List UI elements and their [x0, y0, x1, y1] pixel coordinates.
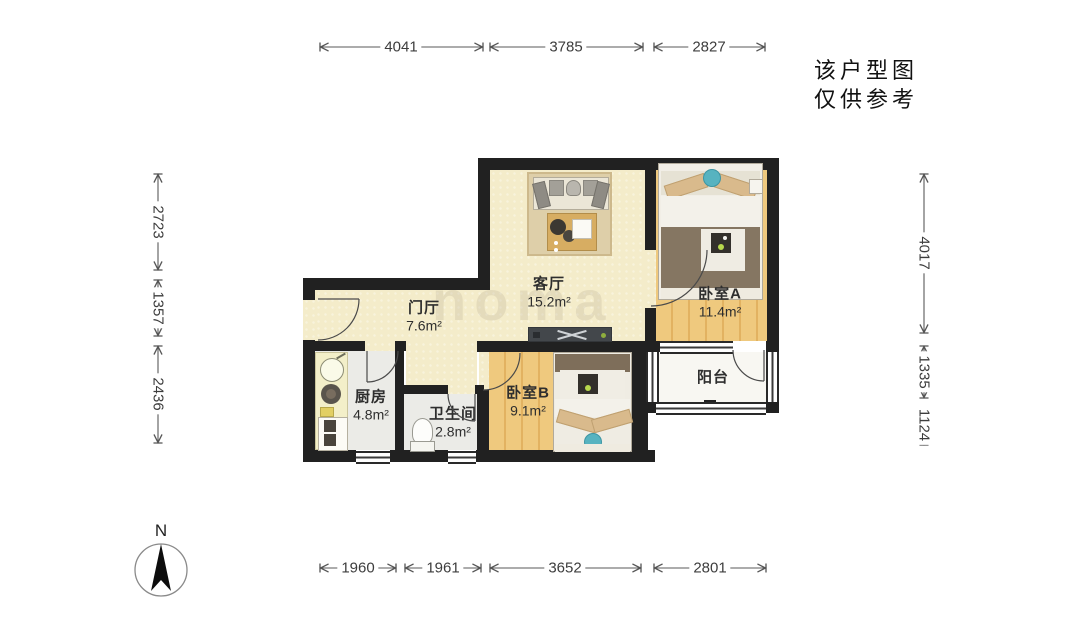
wall-bedrooma-divider-upper — [645, 158, 656, 250]
bedroom-a-bed — [658, 163, 763, 300]
balcony-post-br — [766, 401, 779, 413]
kitchen-cabinet-door — [324, 434, 336, 446]
kitchen-counter — [315, 352, 348, 450]
dim-left-2: 1357 — [150, 287, 167, 328]
dim-top-1: 4041 — [380, 39, 421, 56]
dim-bottom-4: 2801 — [689, 560, 730, 577]
sofa-cushion — [566, 180, 581, 196]
dim-bottom-3: 3652 — [544, 560, 585, 577]
north-compass-icon — [135, 544, 187, 596]
room-name: 阳台 — [697, 369, 729, 387]
kitchen-item-yellow — [320, 407, 334, 417]
room-area: 2.8m² — [429, 424, 477, 441]
wall-bottom-1 — [303, 450, 356, 462]
bedroom-b-bed — [553, 352, 632, 452]
dim-right-3: 1124 — [916, 405, 933, 445]
wall-left-upper — [303, 278, 315, 300]
window-balcony-left — [646, 352, 659, 402]
room-area: 7.6m² — [406, 318, 442, 335]
room-label-bedroom-b: 卧室B 9.1m² — [506, 385, 550, 420]
room-area: 15.2m² — [527, 294, 571, 311]
bed-foot-strip — [555, 444, 630, 452]
room-label-bathroom: 卫生间 2.8m² — [429, 406, 477, 441]
wall-bedrooma-bottom-corner-right — [766, 341, 779, 352]
sofa-cushion — [549, 180, 564, 196]
window-balcony-right — [766, 352, 779, 402]
wall-bath-top-1 — [404, 385, 448, 394]
dim-right-1: 4017 — [916, 232, 933, 273]
table-decor-card — [572, 219, 592, 239]
toilet-tank — [410, 441, 435, 452]
room-name: 卫生间 — [429, 406, 477, 424]
entrance-threshold — [303, 298, 315, 340]
kitchen-sink — [320, 358, 344, 382]
dim-right-2: 1335 — [916, 351, 933, 392]
dim-bottom-1: 1960 — [337, 560, 378, 577]
window-balcony-south — [656, 402, 766, 415]
window-bathroom-south — [448, 451, 476, 464]
room-label-balcony: 阳台 — [697, 369, 729, 387]
wall-kitchen-top-1 — [303, 341, 365, 351]
room-name: 卧室A — [698, 286, 742, 304]
kitchen-door-threshold — [365, 341, 398, 351]
table-decor-dot — [554, 241, 558, 245]
bed-tray-dot-green — [718, 244, 724, 250]
dim-left-1: 2723 — [150, 201, 167, 242]
dim-top-2: 3785 — [545, 39, 586, 56]
room-label-entry-hall: 门厅 7.6m² — [406, 300, 442, 335]
window-bedrooma-balcony — [660, 341, 733, 354]
room-area: 4.8m² — [353, 407, 389, 424]
balcony-post-bl — [642, 401, 656, 413]
compass-north-label: N — [155, 521, 167, 541]
bedroom-a-nightstand — [749, 179, 763, 194]
room-area: 11.4m² — [698, 304, 742, 321]
table-decor-dot — [554, 248, 558, 252]
watermark-text: noma — [432, 268, 613, 333]
room-label-kitchen: 厨房 4.8m² — [353, 389, 389, 424]
bed-decor-teal — [703, 169, 721, 187]
wall-bath-bedroomb — [477, 390, 489, 462]
wall-kitchen-bath — [395, 341, 404, 462]
disclaimer-line-2: 仅供参考 — [814, 86, 918, 115]
room-name: 卧室B — [506, 385, 550, 403]
wall-bedroomb-top — [477, 341, 648, 352]
bedroom-a-door-threshold — [645, 250, 656, 308]
room-name: 厨房 — [353, 389, 389, 407]
wall-left-lower — [303, 340, 315, 462]
room-name: 门厅 — [406, 300, 442, 318]
floorplan-canvas: 4041 3785 2827 1960 1961 3652 2801 2723 … — [0, 0, 1082, 630]
wall-right — [767, 158, 779, 352]
bed-tray — [711, 233, 731, 253]
room-name: 客厅 — [527, 276, 571, 294]
kitchen-faucet — [336, 353, 346, 360]
kitchen-cabinet-door — [324, 420, 336, 432]
bed-duvet — [661, 196, 760, 227]
dim-left-3: 2436 — [150, 373, 167, 414]
kitchen-stove-burner-inner — [326, 389, 336, 399]
disclaimer-note: 该户型图 仅供参考 — [814, 57, 918, 115]
bed-tray-dot-green — [585, 385, 591, 391]
tv-cabinet-plant — [601, 333, 606, 338]
room-label-living-room: 客厅 15.2m² — [527, 276, 571, 311]
disclaimer-line-1: 该户型图 — [814, 57, 918, 86]
room-label-bedroom-a: 卧室A 11.4m² — [698, 286, 742, 321]
room-area: 9.1m² — [506, 403, 550, 420]
dim-bottom-2: 1961 — [422, 560, 463, 577]
dim-top-3: 2827 — [688, 39, 729, 56]
bed-tray — [578, 374, 598, 394]
window-kitchen-south — [356, 451, 390, 464]
bed-tray-dot-white — [723, 236, 727, 240]
